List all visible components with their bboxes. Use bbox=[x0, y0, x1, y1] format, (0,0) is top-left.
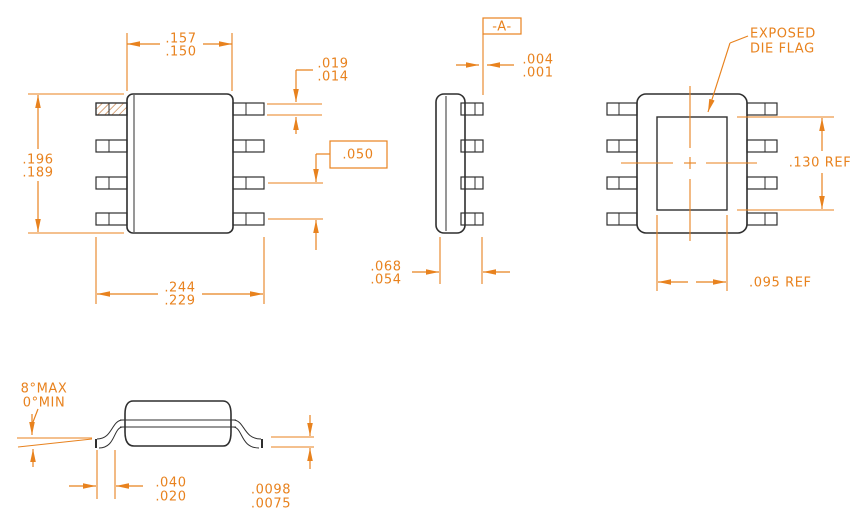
dim-text-lead-thickness-min: .0075 bbox=[251, 497, 291, 512]
dim-lead-width: .019 .014 bbox=[267, 57, 349, 135]
dim-lead-tip-offset: .004 .001 bbox=[456, 53, 554, 81]
pin-5 bbox=[233, 213, 264, 225]
lead-left-gullwing bbox=[96, 420, 123, 448]
dim-text-body-length-min: .189 bbox=[22, 166, 53, 181]
package-outline-drawing: .157 .150 .019 .014 .050 bbox=[0, 0, 863, 514]
bottom-view-pin bbox=[747, 140, 777, 152]
dim-text-pad-length: .130 REF bbox=[789, 156, 852, 171]
dim-text-lead-width-min: .014 bbox=[317, 70, 348, 85]
bottom-view-pin bbox=[747, 103, 777, 115]
exposed-die-flag-callout: EXPOSED DIE FLAG bbox=[708, 27, 816, 113]
dim-overall-thickness: .068 .054 bbox=[370, 237, 510, 288]
pin-6 bbox=[233, 177, 264, 189]
drawing-canvas: .157 .150 .019 .014 .050 bbox=[0, 0, 863, 514]
dim-text-foot-max: .040 bbox=[155, 476, 186, 491]
bottom-view-pin bbox=[607, 213, 637, 225]
dim-lead-thickness: .0098 .0075 bbox=[251, 415, 314, 512]
dim-lead-angle: 8°MAX 0°MIN bbox=[17, 382, 92, 468]
dim-lead-span: .244 .229 bbox=[96, 237, 264, 309]
bottom-view-pin bbox=[747, 177, 777, 189]
datum-flag-a: -A- bbox=[483, 18, 521, 95]
callout-text-line2: DIE FLAG bbox=[750, 42, 815, 57]
dim-text-thickness-min: .054 bbox=[370, 273, 401, 288]
bottom-view-pin bbox=[607, 177, 637, 189]
package-body-top-view bbox=[127, 94, 233, 233]
dim-text-lead-pitch: .050 bbox=[342, 148, 373, 163]
dim-text-span-min: .229 bbox=[164, 294, 195, 309]
lead-right-gullwing bbox=[233, 420, 262, 448]
pin-7 bbox=[233, 140, 264, 152]
bottom-view-pin bbox=[747, 213, 777, 225]
bottom-view: EXPOSED DIE FLAG .130 REF .095 REF bbox=[607, 27, 851, 292]
pin-8 bbox=[233, 103, 264, 115]
dim-text-tip-offset-min: .001 bbox=[522, 66, 553, 81]
pin-1-hatch-pattern bbox=[96, 103, 127, 115]
top-view: .157 .150 .019 .014 .050 bbox=[22, 32, 387, 309]
dim-text-angle-max: 8°MAX bbox=[21, 382, 68, 397]
bottom-view-pin bbox=[607, 103, 637, 115]
pin-4 bbox=[96, 213, 127, 225]
datum-label: -A- bbox=[492, 20, 512, 35]
dim-text-body-width-min: .150 bbox=[165, 45, 196, 60]
side-view: 8°MAX 0°MIN .040 .020 .0098 .0075 bbox=[17, 382, 314, 512]
dim-pad-width: .095 REF bbox=[657, 215, 812, 291]
package-body-side-view bbox=[125, 401, 231, 446]
bottom-view-pin bbox=[607, 140, 637, 152]
pin-3 bbox=[96, 177, 127, 189]
callout-text-line1: EXPOSED bbox=[750, 27, 816, 42]
dim-body-width: .157 .150 bbox=[127, 32, 232, 92]
dim-text-lead-thickness-max: .0098 bbox=[251, 483, 291, 498]
dim-text-pad-width: .095 REF bbox=[749, 276, 812, 291]
dim-lead-pitch: .050 bbox=[268, 141, 387, 250]
pin-2 bbox=[96, 140, 127, 152]
dim-text-angle-min: 0°MIN bbox=[23, 396, 66, 411]
dim-foot-length: .040 .020 bbox=[69, 450, 187, 505]
center-lines bbox=[621, 86, 757, 241]
end-view: -A- .004 .001 .068 .054 bbox=[370, 18, 553, 288]
dim-text-foot-min: .020 bbox=[155, 490, 186, 505]
